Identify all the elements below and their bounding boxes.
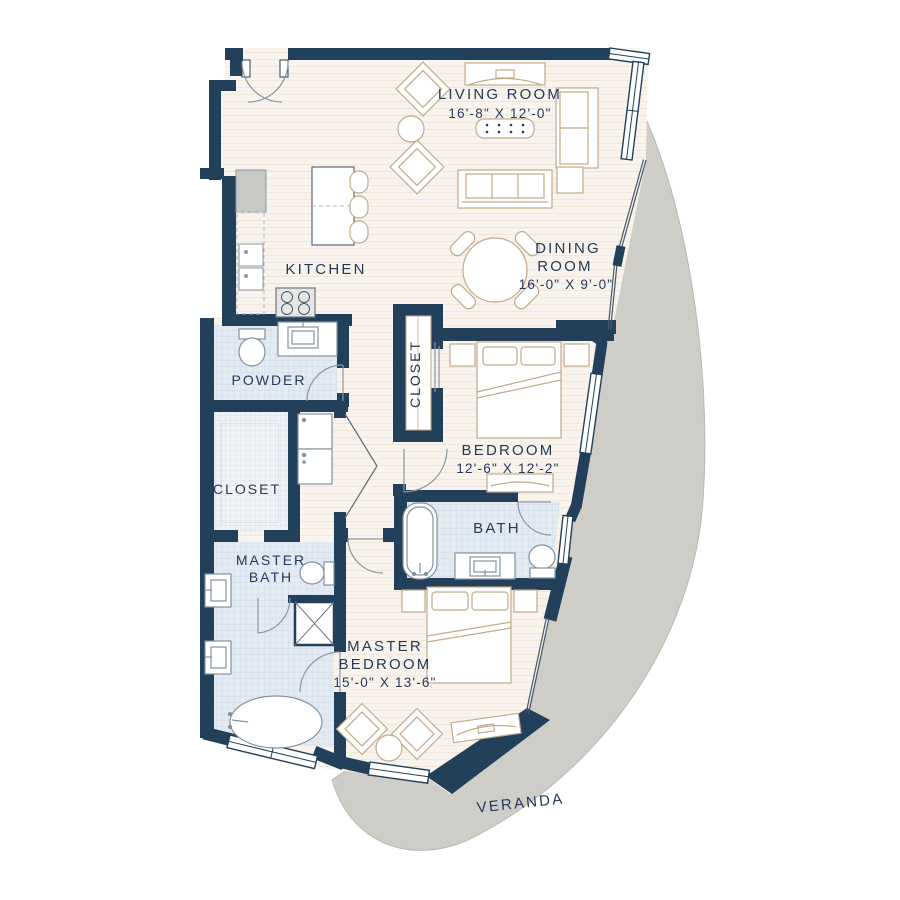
master-bath-label-1: MASTER [236,552,306,568]
dining-room-label-1: DINING [535,240,601,257]
refrigerator [236,170,266,212]
washer-dryer [298,414,332,484]
master-bedroom-dims: 15'-0" X 13'-6" [333,675,436,690]
window-mullion [617,246,621,266]
nightstand [564,344,589,366]
tufted-bench [476,119,534,138]
stove [276,288,315,317]
side-table-round [398,116,424,142]
vanity-sink [205,641,231,674]
nightstand [450,344,475,366]
sofa-horizontal [458,170,552,208]
powder-label: POWDER [232,372,307,388]
kitchen-label: KITCHEN [285,261,366,278]
master-bedroom-label-2: BEDROOM [339,656,432,673]
shower [295,602,334,645]
sofa-vertical [556,88,598,168]
powder-toilet [239,329,265,366]
bath-label: BATH [473,520,521,537]
bedroom-label: BEDROOM [462,442,555,459]
nightstand [514,590,537,612]
nightstand [402,590,425,612]
bath-toilet [529,545,555,578]
bedroom-dims: 12'-6" X 12'-2" [456,461,559,476]
master-bedroom-label-1: MASTER [347,638,423,655]
powder-vanity [278,322,337,356]
floor-plan-canvas: LIVING ROOM 16'-8" X 12'-0" DINING ROOM … [0,0,900,900]
dining-table [463,238,527,302]
bathtub [403,503,437,579]
bedroom-closet-label: CLOSET [407,340,423,408]
side-table-square [557,167,583,193]
bed [477,342,561,438]
soaking-tub [229,696,323,748]
living-room-label: LIVING ROOM [438,86,562,103]
side-table-round [376,735,402,761]
media-console [465,63,545,85]
vanity-sink [205,574,231,607]
dining-room-label-2: ROOM [537,258,592,275]
living-room-dims: 16'-8" X 12'-0" [448,106,551,121]
bath-vanity [455,553,515,579]
master-closet-label: CLOSET [213,481,281,497]
kitchen-island [312,167,368,245]
floor-plan: LIVING ROOM 16'-8" X 12'-0" DINING ROOM … [0,0,900,900]
master-bed [427,587,511,683]
master-bath-label-2: BATH [249,569,293,585]
dining-room-dims: 16'-0" X 9'-0" [519,277,614,292]
dresser [487,474,553,492]
